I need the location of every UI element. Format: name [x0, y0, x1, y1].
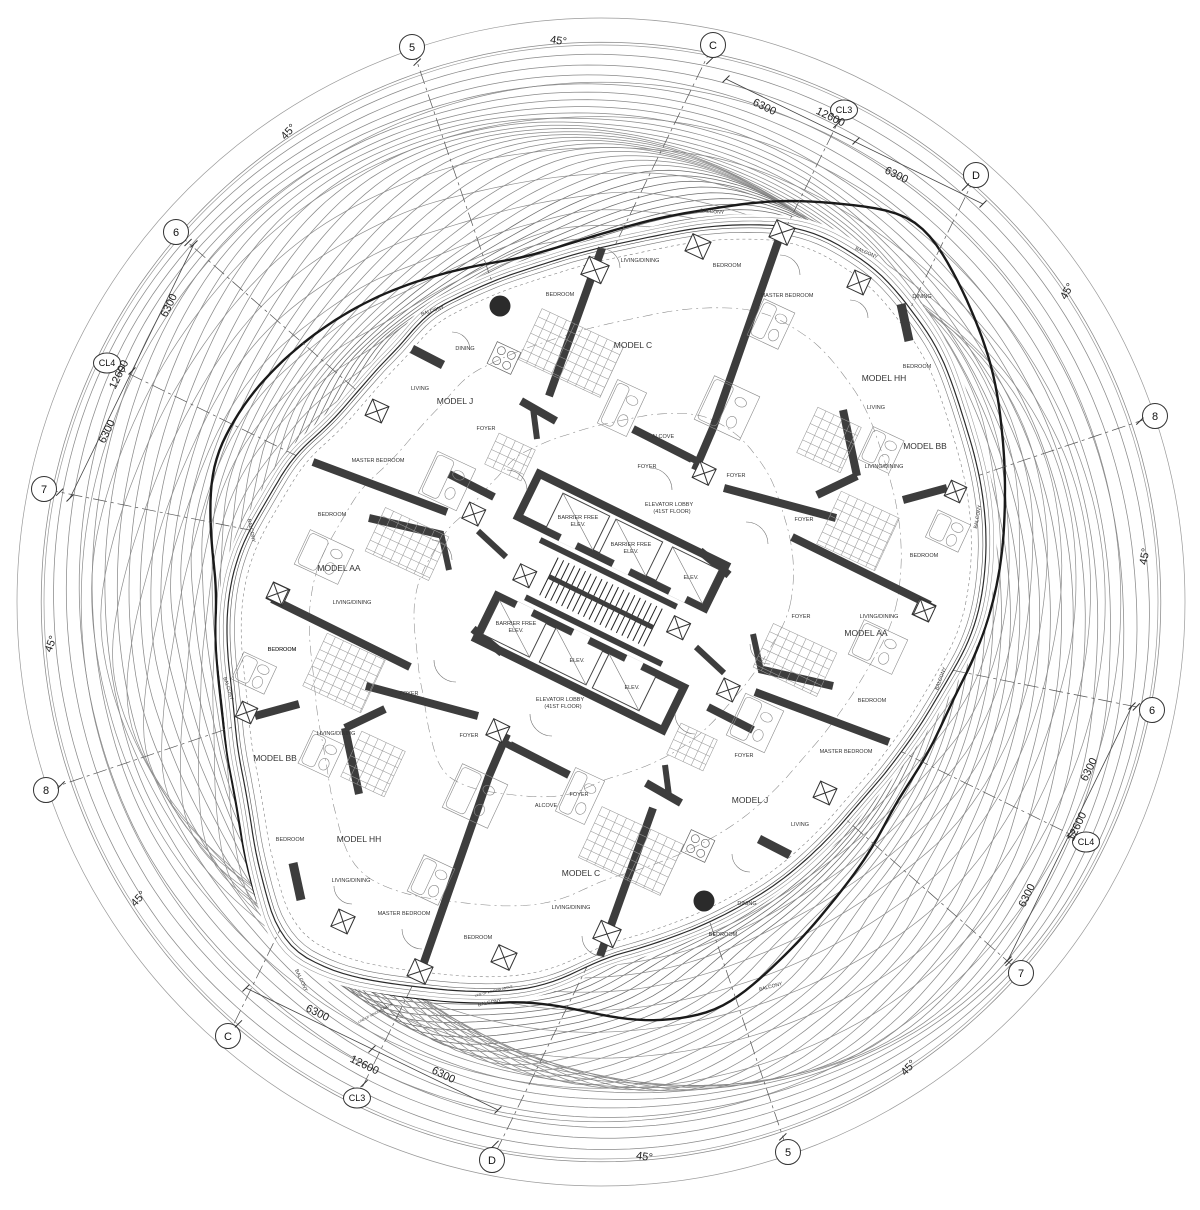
svg-text:(41ST FLOOR): (41ST FLOOR): [544, 704, 581, 710]
svg-text:MASTER BEDROOM: MASTER BEDROOM: [820, 749, 873, 755]
svg-text:FOYER: FOYER: [570, 792, 589, 798]
svg-text:FOYER: FOYER: [792, 614, 811, 620]
svg-text:6: 6: [1149, 705, 1155, 717]
svg-text:BEDROOM: BEDROOM: [709, 932, 738, 938]
svg-text:8: 8: [1152, 411, 1158, 423]
svg-text:DINING: DINING: [912, 294, 931, 300]
svg-text:FOYER: FOYER: [460, 733, 479, 739]
svg-text:BARRIER FREE: BARRIER FREE: [496, 621, 537, 627]
svg-text:MASTER BEDROOM: MASTER BEDROOM: [761, 293, 814, 299]
svg-text:MODEL C: MODEL C: [562, 868, 600, 878]
svg-text:LIVING/DINING: LIVING/DINING: [865, 464, 904, 470]
svg-text:MODEL J: MODEL J: [437, 396, 474, 406]
svg-text:7: 7: [41, 484, 47, 496]
svg-text:LIVING: LIVING: [791, 822, 809, 828]
svg-text:CL3: CL3: [349, 1093, 366, 1103]
svg-text:FOYER: FOYER: [795, 517, 814, 523]
svg-text:5: 5: [409, 42, 415, 54]
svg-text:45°: 45°: [549, 34, 567, 48]
svg-text:C: C: [709, 40, 717, 52]
svg-text:FOYER: FOYER: [477, 426, 496, 432]
svg-text:MODEL HH: MODEL HH: [337, 834, 382, 844]
svg-text:7: 7: [1018, 968, 1024, 980]
svg-text:ELEVATOR LOBBY: ELEVATOR LOBBY: [536, 697, 585, 703]
svg-text:LIVING: LIVING: [411, 386, 429, 392]
svg-text:45°: 45°: [635, 1150, 653, 1164]
svg-text:MASTER BEDROOM: MASTER BEDROOM: [378, 911, 431, 917]
svg-text:D: D: [488, 1155, 496, 1167]
svg-text:BEDROOM: BEDROOM: [713, 263, 742, 269]
svg-text:5: 5: [785, 1147, 791, 1159]
svg-text:FOYER: FOYER: [638, 464, 657, 470]
svg-text:BEDROOM: BEDROOM: [464, 935, 493, 941]
svg-text:BARRIER FREE: BARRIER FREE: [558, 515, 599, 521]
svg-text:LIVING/DINING: LIVING/DINING: [332, 878, 371, 884]
svg-text:BEDROOM: BEDROOM: [318, 512, 347, 518]
svg-text:8: 8: [43, 785, 49, 797]
svg-text:MODEL J: MODEL J: [732, 795, 769, 805]
svg-text:FOYER: FOYER: [727, 473, 746, 479]
svg-text:ALCOVE: ALCOVE: [652, 434, 675, 440]
svg-text:BEDROOM: BEDROOM: [546, 292, 575, 298]
svg-text:6: 6: [173, 227, 179, 239]
svg-text:FOYER: FOYER: [735, 753, 754, 759]
svg-text:ALCOVE: ALCOVE: [535, 803, 558, 809]
svg-text:ELEV.: ELEV.: [570, 522, 586, 528]
svg-text:LIVING: LIVING: [867, 405, 885, 411]
svg-text:LIVING/DINING: LIVING/DINING: [333, 600, 372, 606]
svg-text:C: C: [224, 1031, 232, 1043]
svg-text:CL4: CL4: [99, 358, 116, 368]
svg-text:ELEV.: ELEV.: [569, 658, 585, 664]
svg-text:CL4: CL4: [1078, 837, 1095, 847]
svg-text:FOYER: FOYER: [400, 691, 419, 697]
svg-text:MODEL HH: MODEL HH: [862, 373, 907, 383]
svg-text:MODEL BB: MODEL BB: [253, 753, 297, 763]
svg-text:LIVING/DINING: LIVING/DINING: [621, 258, 660, 264]
svg-text:BEDROOM: BEDROOM: [268, 647, 297, 653]
svg-text:LIVING/DINING: LIVING/DINING: [317, 731, 356, 737]
svg-text:MASTER BEDROOM: MASTER BEDROOM: [352, 458, 405, 464]
svg-text:LIVING/DINING: LIVING/DINING: [552, 905, 591, 911]
svg-text:LIVING/DINING: LIVING/DINING: [860, 614, 899, 620]
svg-text:DINING: DINING: [737, 901, 756, 907]
svg-text:ELEV.: ELEV.: [683, 575, 699, 581]
svg-text:BEDROOM: BEDROOM: [910, 553, 939, 559]
svg-text:BARRIER FREE: BARRIER FREE: [611, 542, 652, 548]
svg-text:D: D: [972, 170, 980, 182]
svg-text:MODEL BB: MODEL BB: [903, 441, 947, 451]
svg-text:ELEV.: ELEV.: [624, 685, 640, 691]
svg-text:BEDROOM: BEDROOM: [276, 837, 305, 843]
svg-text:ELEVATOR LOBBY: ELEVATOR LOBBY: [645, 502, 694, 508]
svg-text:MODEL C: MODEL C: [614, 340, 652, 350]
svg-text:DINING: DINING: [455, 346, 474, 352]
svg-text:MODEL AA: MODEL AA: [317, 563, 360, 573]
svg-text:MODEL AA: MODEL AA: [844, 628, 887, 638]
svg-text:BEDROOM: BEDROOM: [903, 364, 932, 370]
svg-text:ELEV.: ELEV.: [508, 628, 524, 634]
svg-text:ELEV.: ELEV.: [623, 549, 639, 555]
svg-text:(41ST FLOOR): (41ST FLOOR): [653, 509, 690, 515]
svg-text:BEDROOM: BEDROOM: [858, 698, 887, 704]
